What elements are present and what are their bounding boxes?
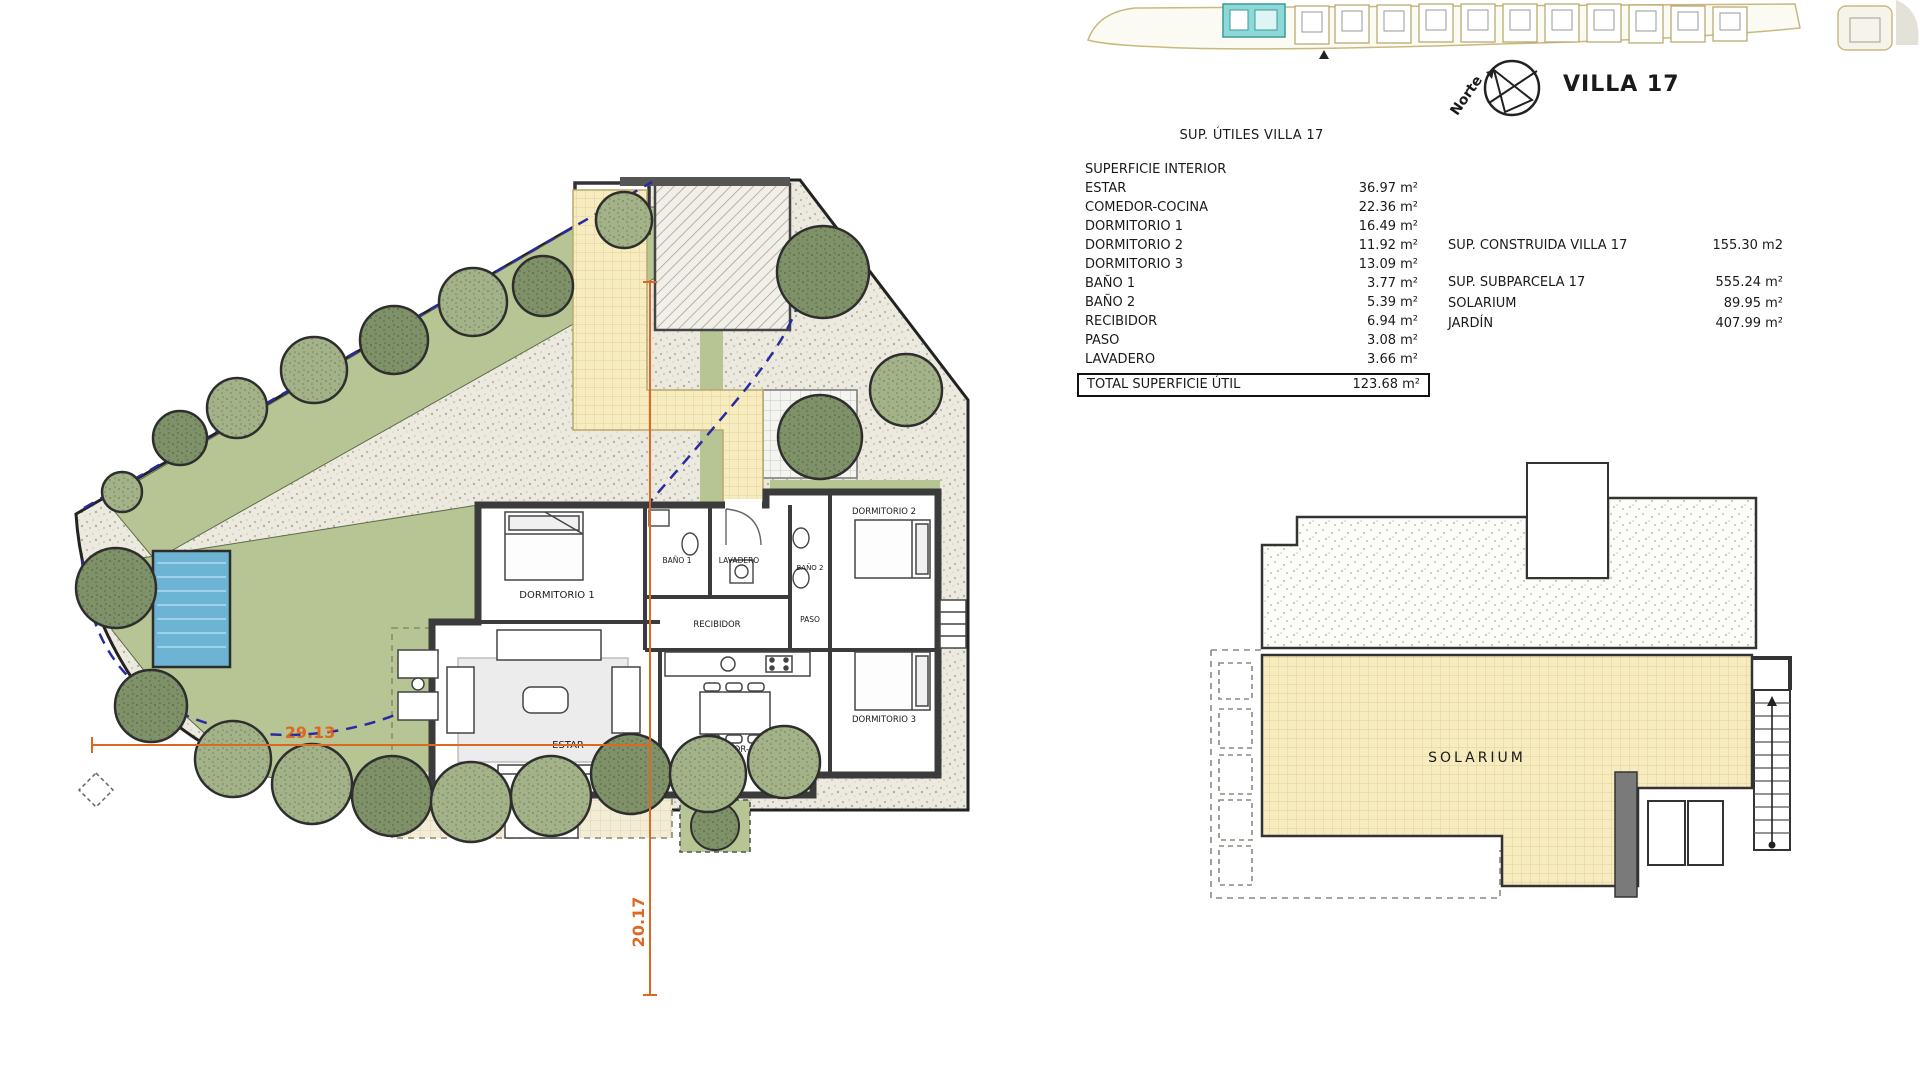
sofa-left — [447, 667, 474, 733]
areas-section-header: SUPERFICIE INTERIOR — [1085, 160, 1418, 179]
lounger-2 — [398, 692, 438, 720]
minimap-highlight-villa — [1223, 4, 1285, 37]
table-row: DORMITORIO 313.09 m² — [1085, 255, 1418, 274]
sofa-right — [612, 667, 640, 733]
roof-stairs — [1752, 658, 1790, 850]
diamond-ornament — [79, 773, 113, 807]
sofa-top — [497, 630, 601, 660]
roof-gravel — [1262, 498, 1756, 648]
roof-notch — [1527, 463, 1608, 578]
table-row: COMEDOR-COCINA22.36 m² — [1085, 198, 1418, 217]
table-row: DORMITORIO 116.49 m² — [1085, 217, 1418, 236]
plan-drawing: DORMITORIO 1 BAÑO 1 LAVADERO RECIBIDOR B… — [0, 0, 1920, 1080]
room-label-lavadero: LAVADERO — [719, 556, 760, 565]
room-label-recibidor: RECIBIDOR — [693, 620, 740, 630]
minimap-common-area — [1838, 0, 1919, 50]
plan-sheet: DORMITORIO 1 BAÑO 1 LAVADERO RECIBIDOR B… — [0, 0, 1920, 1080]
bed-dormitorio-1 — [505, 512, 583, 580]
pool — [153, 551, 230, 667]
roof-planters — [1219, 663, 1252, 885]
bed-dormitorio-3 — [855, 652, 930, 710]
solarium-label: SOLARIUM — [1428, 750, 1526, 766]
areas-table: SUP. ÚTILES VILLA 17 SUPERFICIE INTERIOR… — [1085, 126, 1418, 397]
roof-plan: SOLARIUM — [1211, 463, 1790, 898]
table-row: DORMITORIO 211.92 m² — [1085, 236, 1418, 255]
summary-subparcela: SUP. SUBPARCELA 17555.24 m² — [1448, 273, 1783, 293]
summary-construida: SUP. CONSTRUIDA VILLA 17155.30 m2 — [1448, 236, 1783, 256]
north-label: Norte — [1447, 73, 1486, 119]
summary-solarium: SOLARIUM89.95 m² — [1448, 294, 1783, 314]
minimap-tick — [1319, 50, 1329, 59]
room-label-dormitorio-1: DORMITORIO 1 — [519, 590, 594, 601]
room-label-paso: PASO — [800, 615, 820, 624]
compass: Norte — [1447, 61, 1539, 118]
side-table — [412, 678, 424, 690]
dimension-vertical: 20.17 — [629, 897, 648, 948]
table-row: BAÑO 13.77 m² — [1085, 274, 1418, 293]
lounger-1 — [398, 650, 438, 678]
room-label-dormitorio-2: DORMITORIO 2 — [852, 507, 916, 517]
bed-dormitorio-2 — [855, 520, 930, 578]
areas-table-title: SUP. ÚTILES VILLA 17 — [1085, 126, 1418, 145]
site-overview-map — [1088, 0, 1919, 59]
roof-units — [1648, 801, 1723, 865]
summary-jardin: JARDÍN407.99 m² — [1448, 314, 1783, 334]
kitchen-counter — [665, 652, 810, 676]
roof-wall-stub — [1615, 772, 1637, 897]
table-row: LAVADERO3.66 m² — [1085, 350, 1418, 369]
room-label-dormitorio-3: DORMITORIO 3 — [852, 715, 916, 725]
table-total-row: TOTAL SUPERFICIE ÚTIL 123.68 m² — [1077, 373, 1430, 397]
site-plan: DORMITORIO 1 BAÑO 1 LAVADERO RECIBIDOR B… — [76, 177, 968, 995]
room-label-bano-1: BAÑO 1 — [663, 556, 692, 565]
garden-steps — [940, 600, 966, 648]
table-row: RECIBIDOR6.94 m² — [1085, 312, 1418, 331]
table-row: BAÑO 25.39 m² — [1085, 293, 1418, 312]
dimension-horizontal: 29.13 — [285, 723, 336, 742]
carport-hatched — [655, 184, 790, 330]
room-label-bano-2: BAÑO 2 — [796, 563, 823, 572]
coffee-table — [523, 687, 568, 713]
table-row: ESTAR36.97 m² — [1085, 179, 1418, 198]
villa-title: VILLA 17 — [1563, 72, 1680, 97]
table-row: PASO3.08 m² — [1085, 331, 1418, 350]
